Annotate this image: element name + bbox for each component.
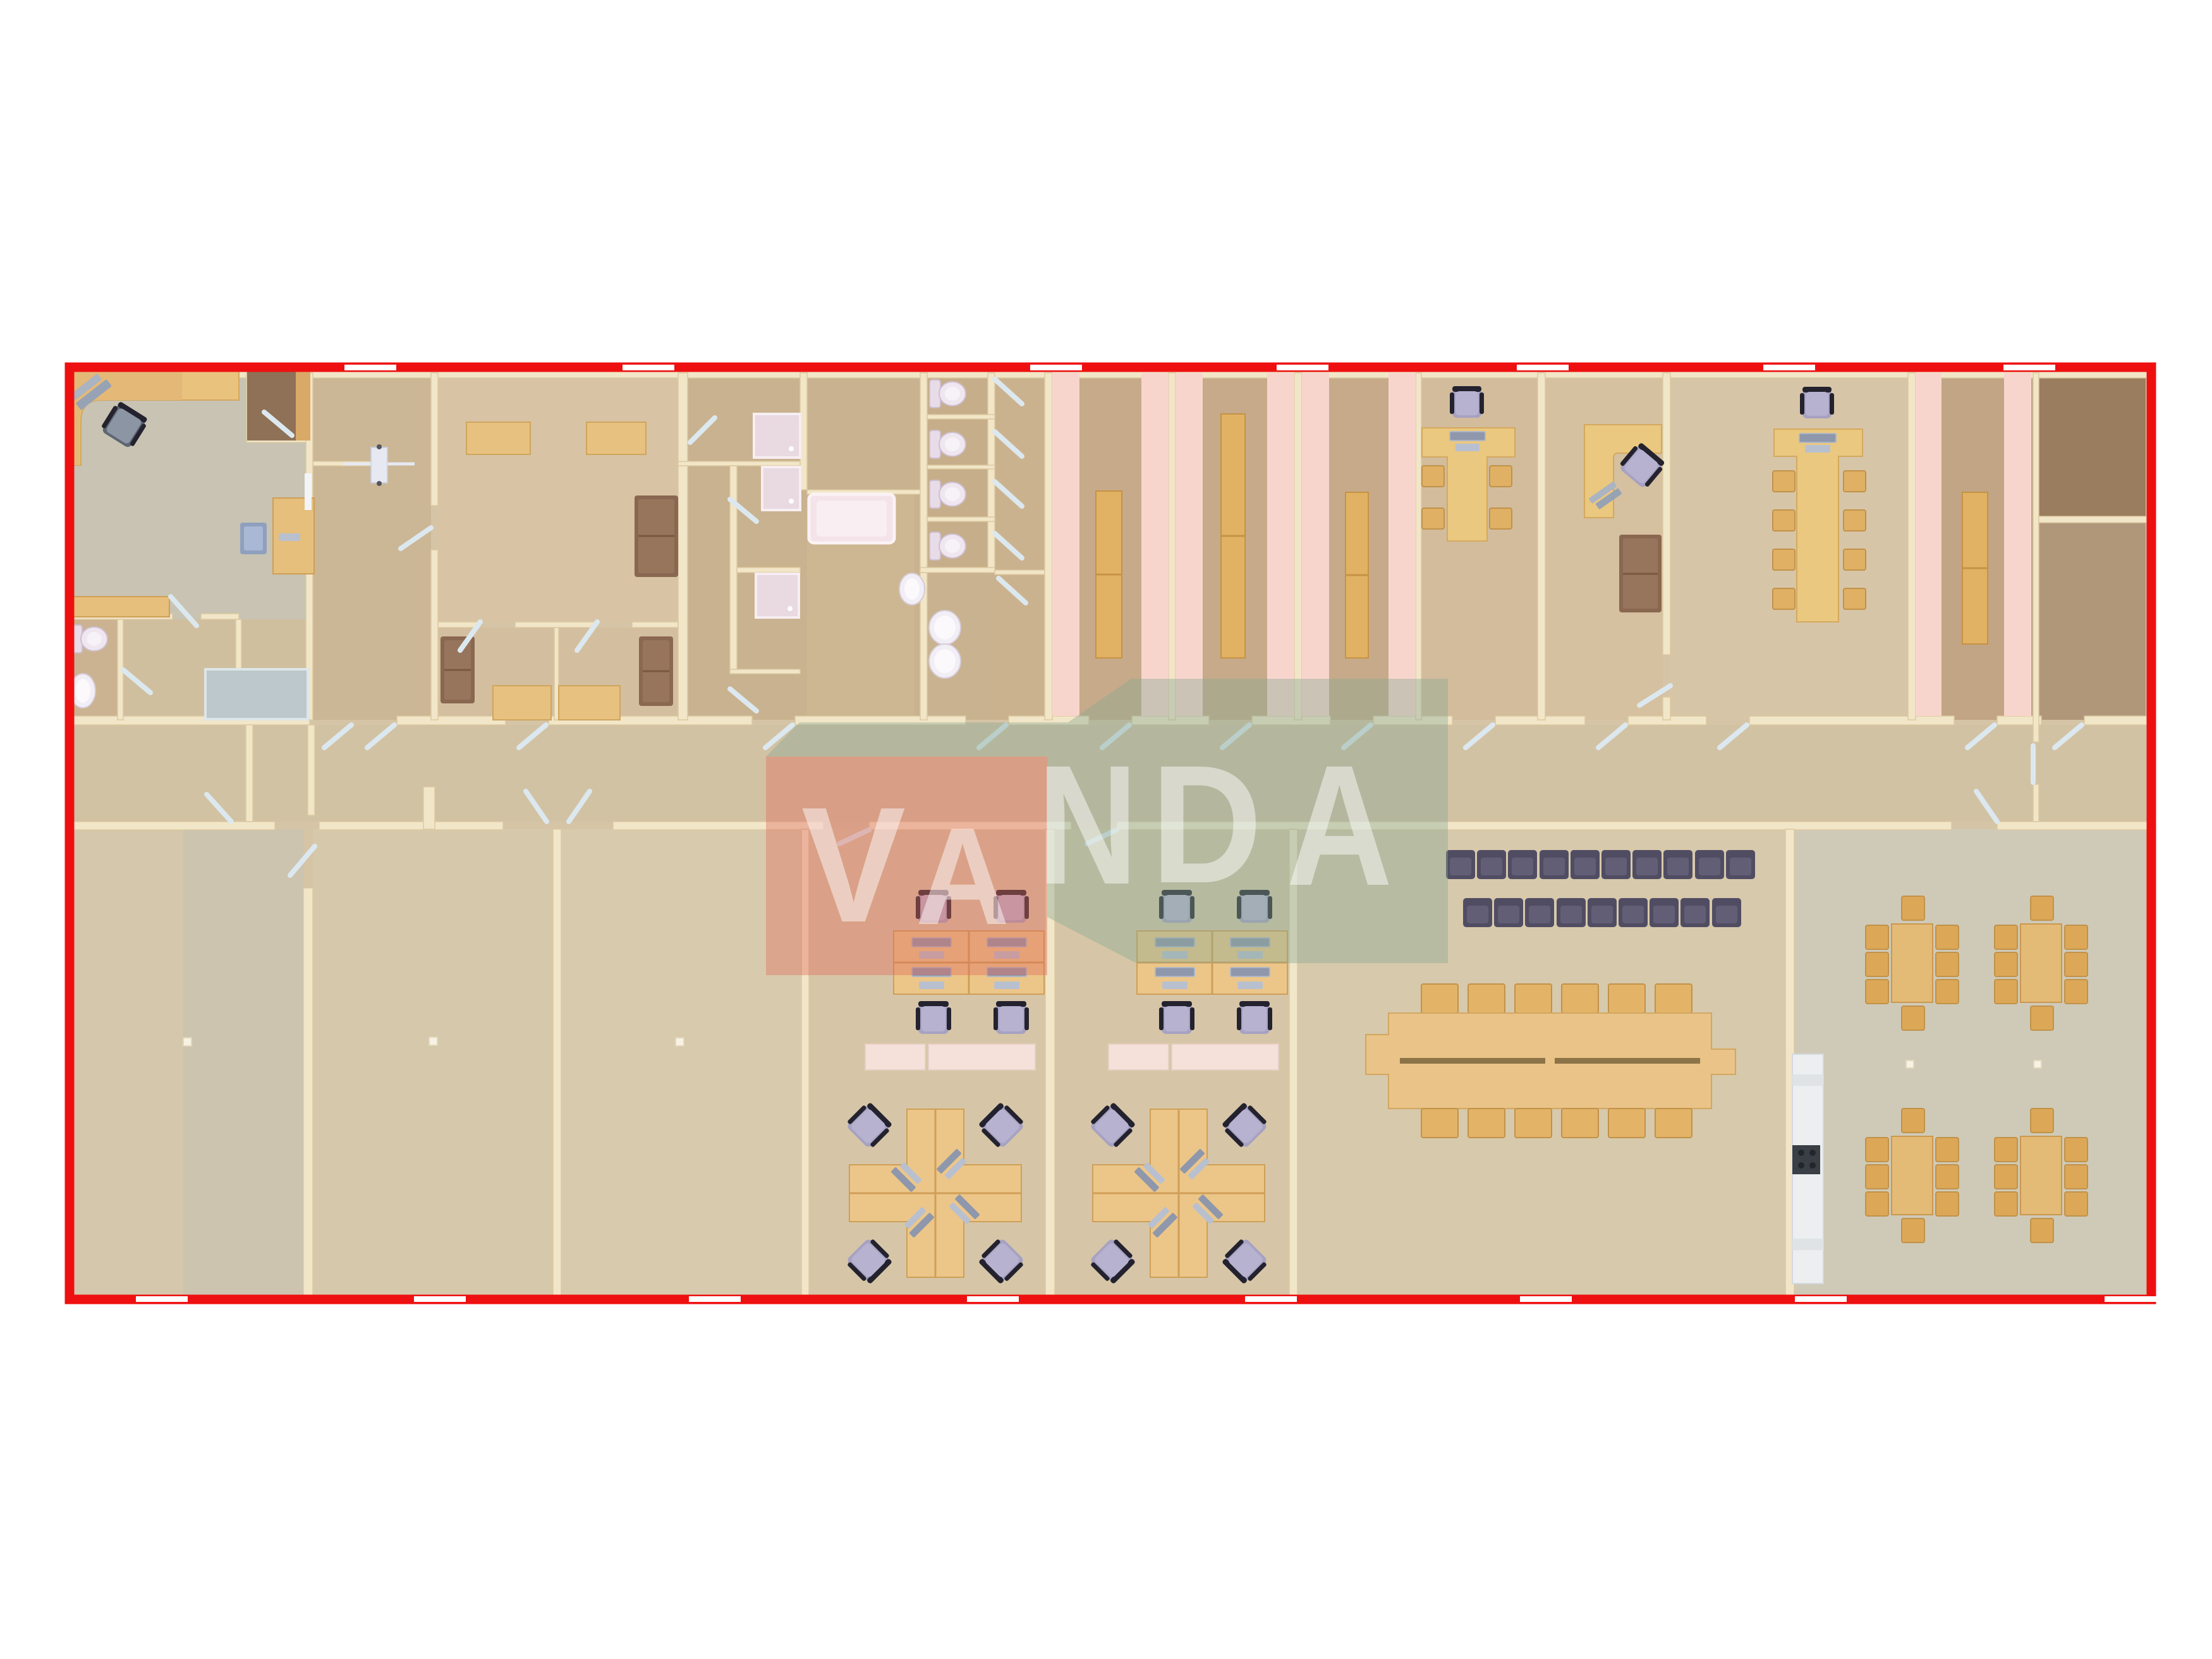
svg-text:V: V: [801, 773, 906, 957]
svg-text:A: A: [1286, 729, 1393, 921]
svg-text:D: D: [1151, 731, 1262, 918]
svg-text:N: N: [1038, 731, 1138, 920]
svg-text:A: A: [916, 799, 1010, 954]
